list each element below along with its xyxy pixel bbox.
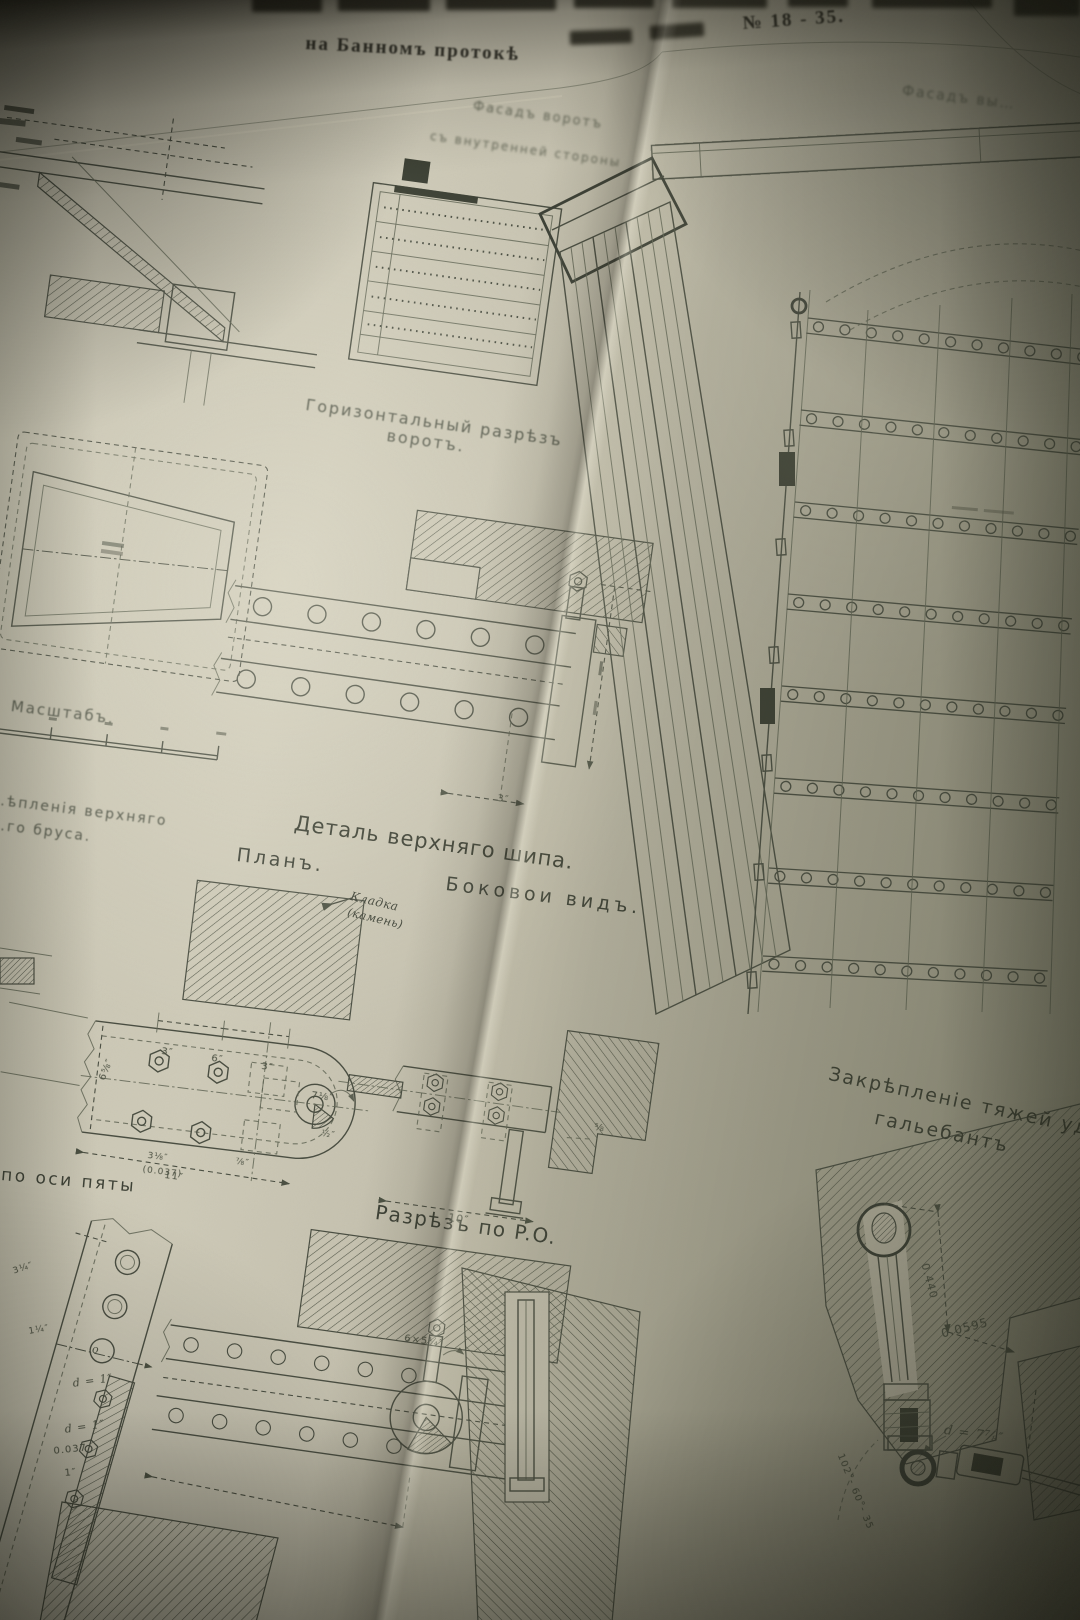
sheet-edge-curves [0,0,1080,160]
title-fragment-blob [672,0,767,8]
masonry-hatch-bottom-left [40,1502,278,1620]
title-fragment-blob [446,0,556,10]
photographed-engineering-plate: на Банномъ протокѣ № 18 - 35. Фасадъ вор… [0,0,1080,1620]
engineering-drawing-svg [0,0,1080,1620]
dim-plan-3a: 3″ [161,1046,174,1058]
left-edge-fragment [0,948,52,994]
gate-leaf-panel-drawing [349,183,562,386]
section-key-icon [394,157,482,203]
title-fragment-blob [252,0,322,12]
dim-plan-12: ½″ [321,1130,336,1142]
hinge-strap-side-view [323,1000,659,1236]
edge-text-fragment [0,118,26,127]
dim-plan-6: 6″ [211,1053,224,1065]
title-fragment-blob [1014,0,1080,16]
dim-plan-3b: 3″ [261,1061,274,1073]
title-middle-blob [570,29,632,45]
title-fragment-blob [338,0,430,11]
masonry-hatch-with-anchor-bolt [462,1268,640,1620]
gate-top-beam-facade [651,123,1080,180]
title-fragment-blob [574,0,654,8]
hinge-strap-plan-drawing [0,859,394,1194]
chamber-plan-drawing [0,431,268,682]
riveted-gate-bands [747,244,1080,1014]
top-tenon-girder-detail [201,485,657,817]
dim-side-58: ⅝ [593,1122,605,1134]
dim-flange-axis-o: o [92,1344,100,1356]
dim-tenon-3: 3″ [496,793,510,806]
embankment-section-drawing [0,94,347,420]
dim-flange-1: 1″ [64,1467,77,1479]
title-fragment-blob [872,0,992,8]
tie-rod-anchor-detail [816,1102,1080,1520]
dim-plan-78: ⅞″ [235,1158,250,1170]
